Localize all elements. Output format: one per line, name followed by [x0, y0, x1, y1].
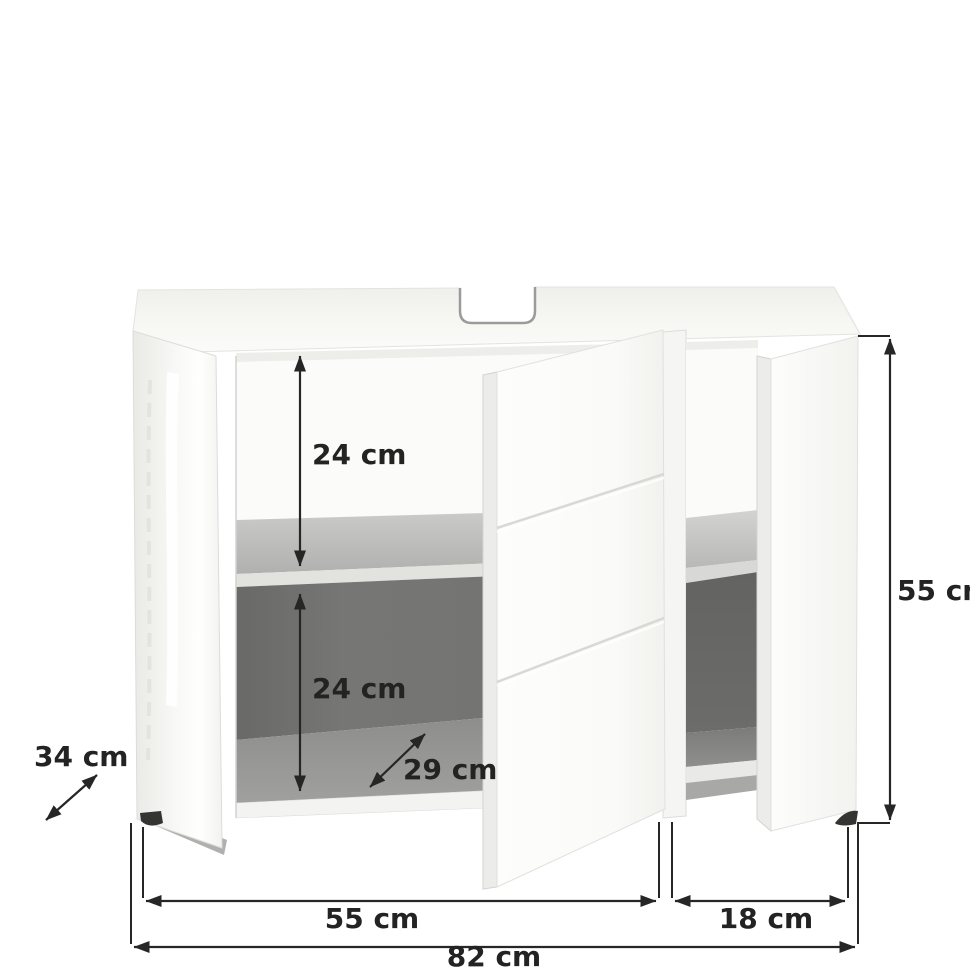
- dim-label-upper-compartment: 24 cm: [312, 438, 407, 471]
- interior-right-back-lower: [686, 572, 758, 733]
- shelf-right-top: [686, 510, 758, 568]
- dim-label-lower-compartment: 24 cm: [312, 672, 407, 705]
- right-door-open: [757, 336, 858, 831]
- dim-label-right-section-width: 18 cm: [719, 902, 814, 935]
- dim-label-total-width: 82 cm: [447, 940, 542, 971]
- middle-door-face: [497, 330, 665, 887]
- dim-arrow-cabinet-depth: [46, 775, 97, 820]
- cabinet-body: [133, 287, 860, 889]
- ext-line-height-bottom: [858, 823, 890, 944]
- dim-label-cabinet-depth: 34 cm: [34, 740, 129, 773]
- interior-right-section: [686, 340, 758, 800]
- middle-door-edge: [483, 372, 497, 889]
- cabinet-foot-left: [140, 811, 163, 826]
- dim-label-left-section-width: 55 cm: [325, 902, 420, 935]
- sink-pipe-notch: [460, 287, 535, 323]
- product-dimension-image: 24 cm 24 cm 29 cm 34 cm 55 cm 55 cm 18 c…: [0, 0, 970, 971]
- right-door-edge: [757, 356, 771, 831]
- interior-right-floor: [686, 727, 758, 767]
- dim-label-cabinet-height: 55 cm: [897, 574, 970, 607]
- interior-right-back-upper: [686, 340, 758, 518]
- center-divider: [663, 330, 686, 818]
- right-door-face: [771, 336, 858, 831]
- left-door-open: [133, 331, 222, 848]
- dim-label-shelf-depth: 29 cm: [403, 753, 498, 786]
- cabinet-diagram-svg: 24 cm 24 cm 29 cm 34 cm 55 cm 55 cm 18 c…: [0, 0, 970, 971]
- left-door-gloss-streak: [166, 372, 179, 707]
- middle-door-open: [483, 330, 665, 889]
- left-door-reflection-line: [148, 380, 150, 760]
